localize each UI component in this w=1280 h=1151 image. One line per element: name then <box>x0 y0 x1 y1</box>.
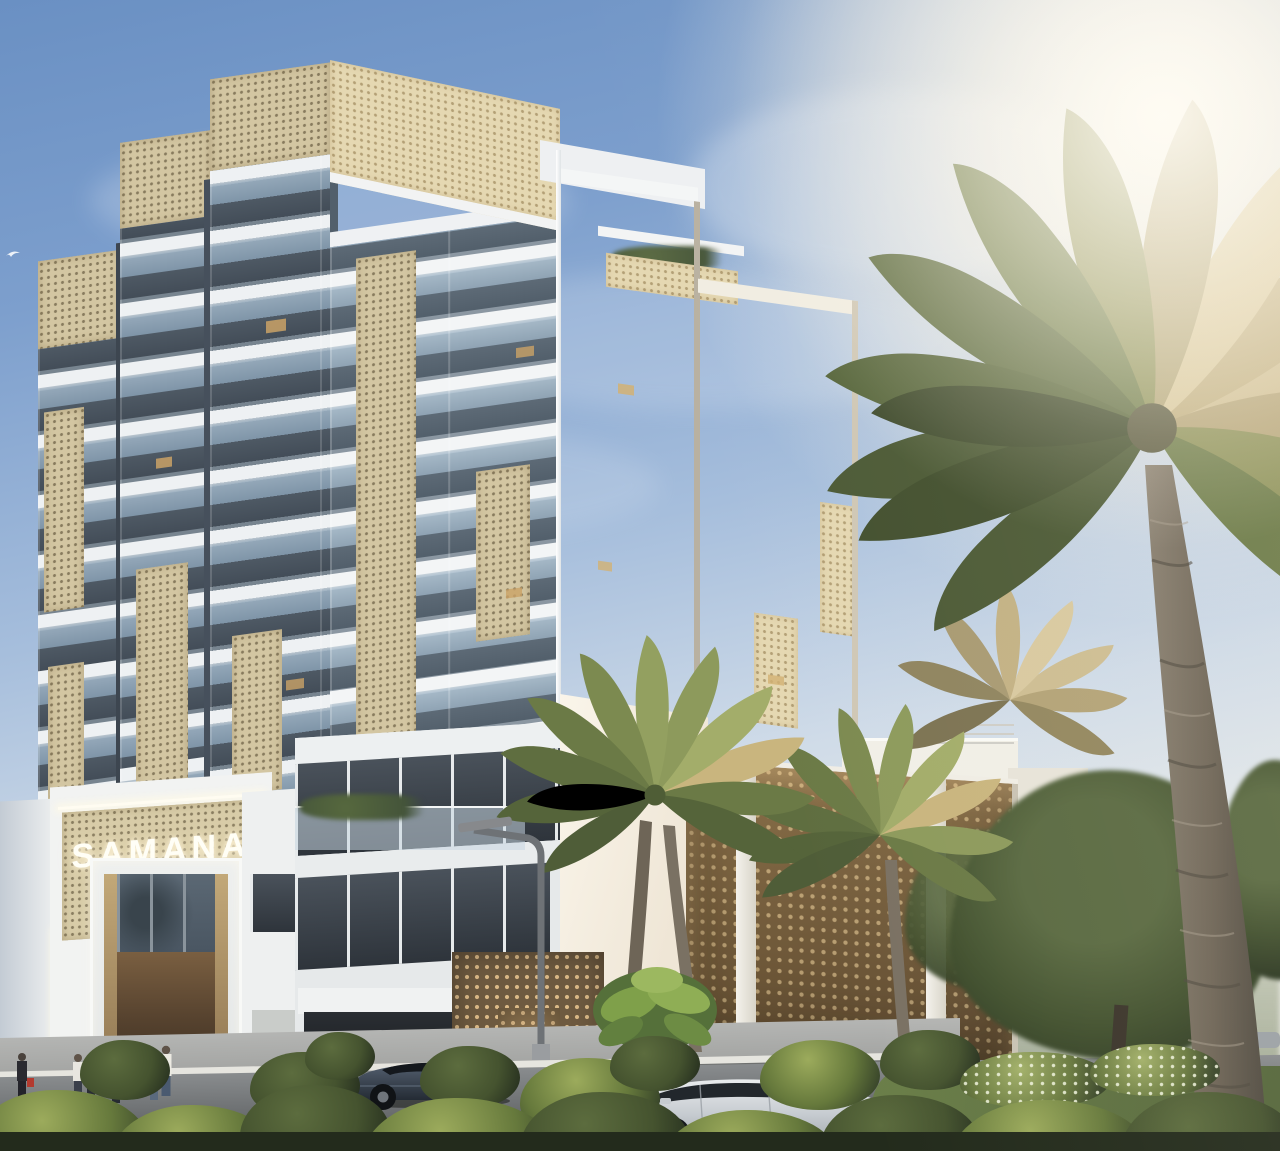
architectural-rendering: SAMANA <box>0 0 1280 1151</box>
bush <box>610 1036 700 1091</box>
bird <box>6 252 20 257</box>
big-palm-canopy <box>823 98 1280 660</box>
bush <box>80 1040 170 1100</box>
street-lamp <box>458 816 550 1060</box>
palm-tree <box>897 582 1128 775</box>
hedge-shadow-strip <box>0 1132 1280 1151</box>
bush <box>305 1032 375 1080</box>
scene-svg-layer <box>0 0 1280 1151</box>
flower-bush <box>1090 1044 1220 1096</box>
